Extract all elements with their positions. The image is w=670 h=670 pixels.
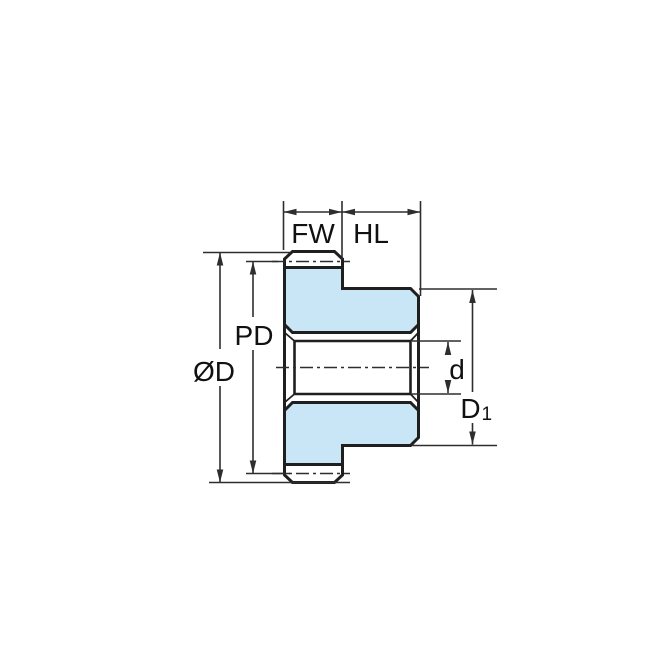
label-outside-diameter: ØD: [193, 356, 235, 387]
gear-cross-section: [272, 252, 429, 483]
gear-dimension-drawing: FW HL PD ØD d D 1: [0, 0, 670, 670]
label-hub-length: HL: [353, 218, 389, 249]
gear-tooth-top: [285, 252, 343, 268]
label-face-width: FW: [291, 218, 335, 249]
drawing-sheet: FW HL PD ØD d D 1: [0, 0, 670, 670]
label-pitch-diameter: PD: [235, 320, 274, 351]
gear-body-lower: [285, 403, 419, 465]
gear-body-upper: [285, 268, 419, 333]
label-hub-diameter-subscript: 1: [482, 404, 493, 425]
label-hub-diameter: D: [460, 393, 480, 424]
label-bore-diameter: d: [449, 354, 465, 385]
